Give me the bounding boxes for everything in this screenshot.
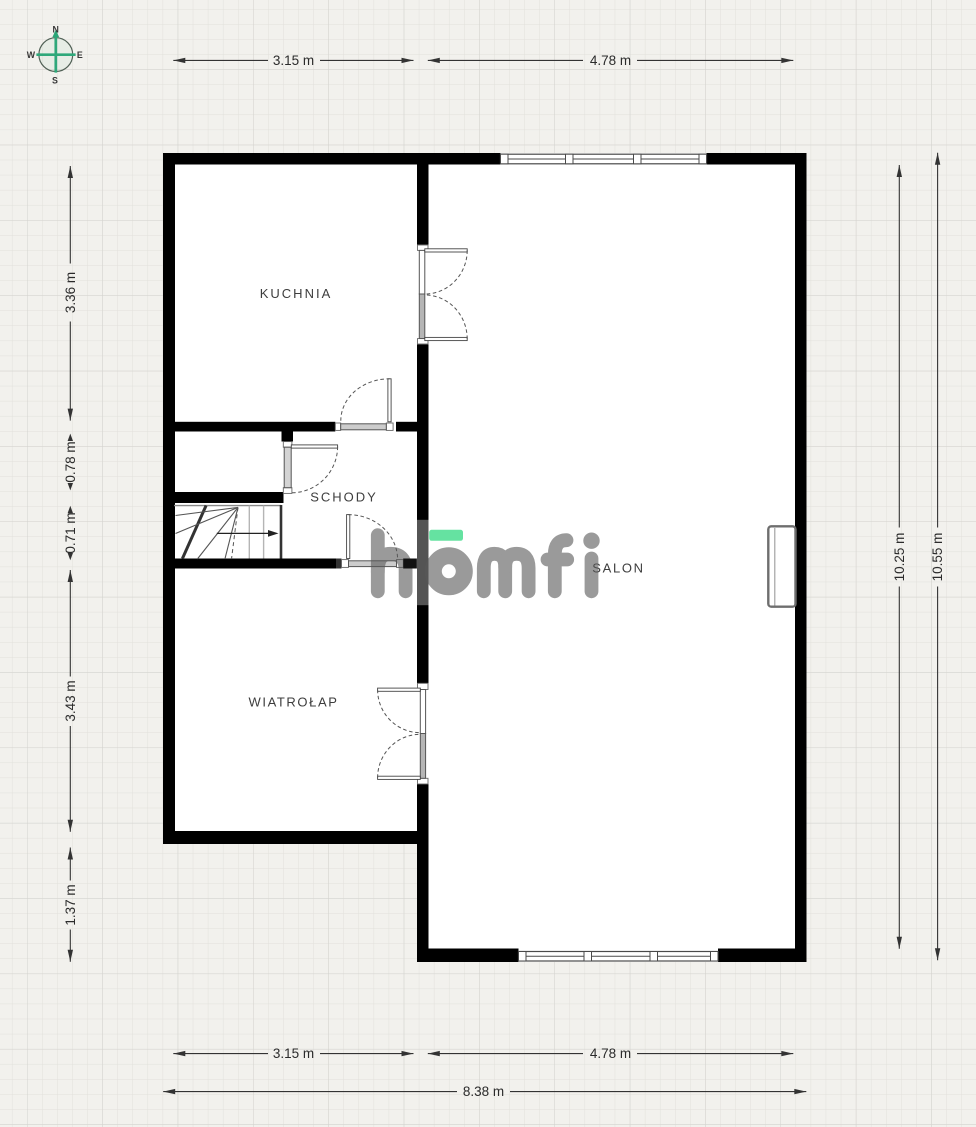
svg-text:3.15 m: 3.15 m [273,1046,314,1061]
svg-text:0.78 m: 0.78 m [63,441,78,482]
svg-text:3.15 m: 3.15 m [273,53,314,68]
svg-text:SALON: SALON [592,561,645,576]
svg-text:4.78 m: 4.78 m [590,1046,631,1061]
svg-text:SCHODY: SCHODY [310,490,378,505]
svg-text:S: S [52,76,58,86]
svg-text:8.38 m: 8.38 m [463,1084,504,1099]
svg-text:KUCHNIA: KUCHNIA [260,286,333,301]
svg-text:3.36 m: 3.36 m [63,272,78,313]
svg-text:3.43 m: 3.43 m [63,680,78,721]
svg-text:4.78 m: 4.78 m [590,53,631,68]
svg-text:1.37 m: 1.37 m [63,884,78,925]
svg-text:10.25 m: 10.25 m [892,533,907,582]
svg-text:N: N [53,25,59,35]
svg-text:10.55 m: 10.55 m [930,533,945,582]
svg-text:0.71 m: 0.71 m [63,512,78,553]
svg-text:W: W [27,50,36,60]
svg-text:E: E [77,50,83,60]
svg-text:WIATROŁAP: WIATROŁAP [248,694,338,709]
